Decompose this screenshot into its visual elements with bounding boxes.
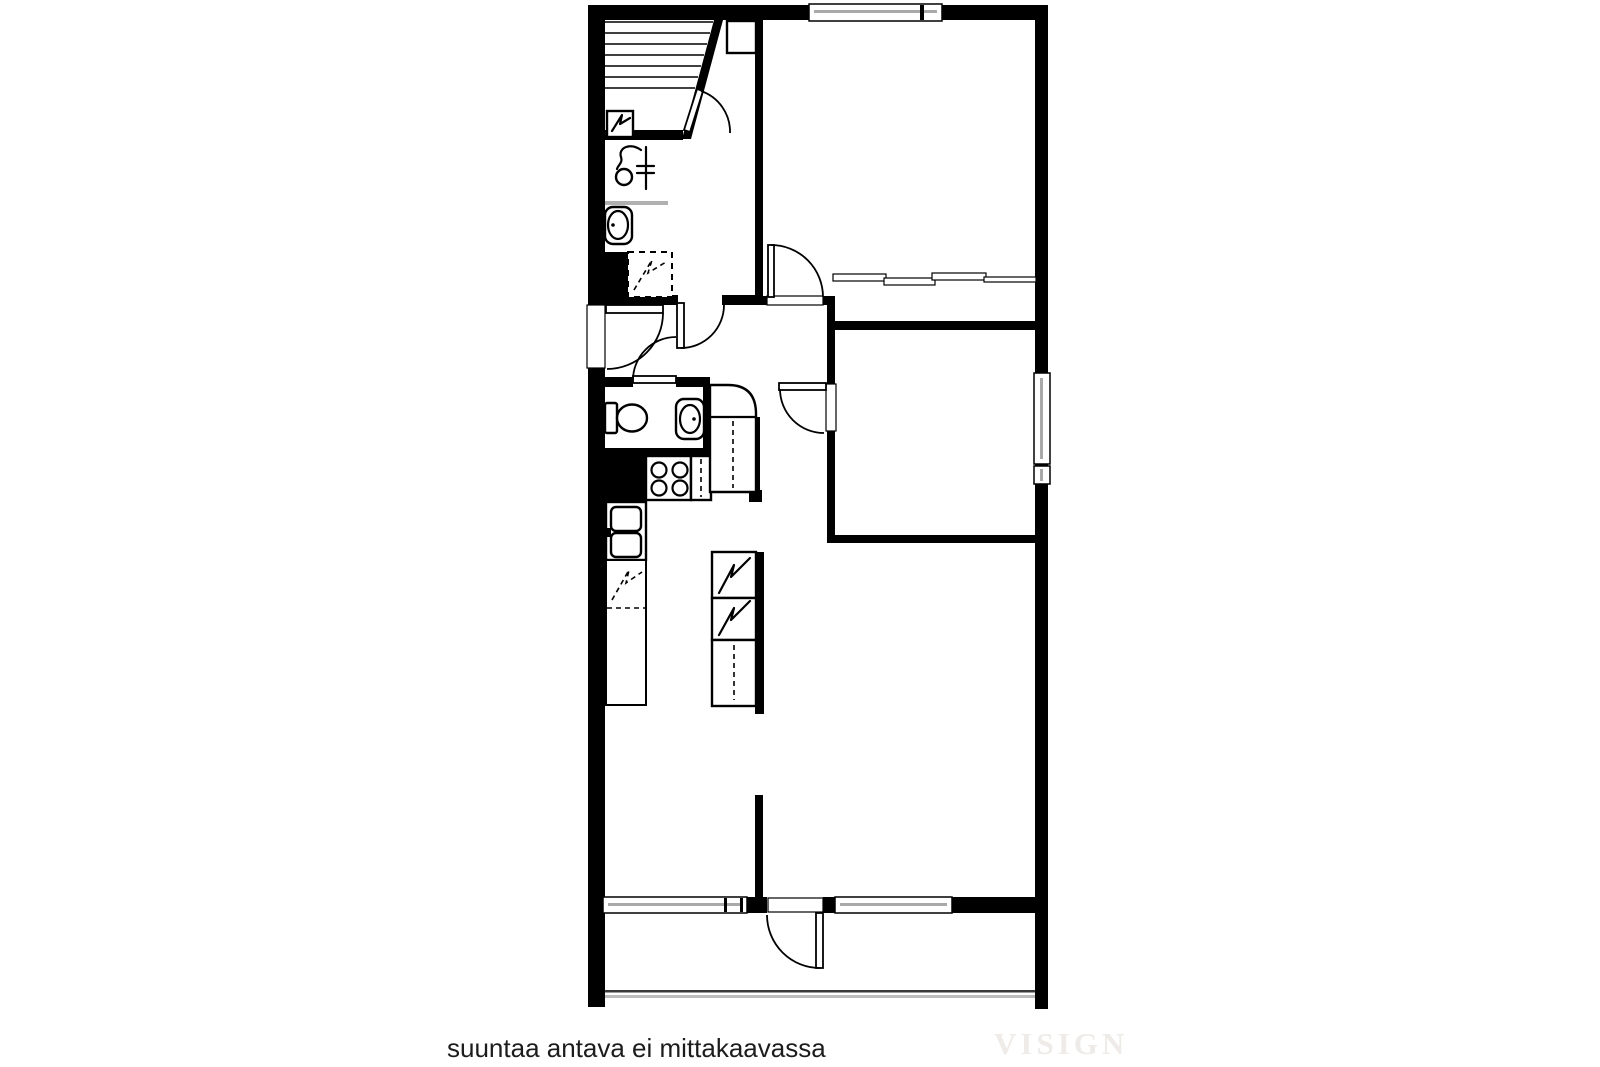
window-bottom-right	[835, 897, 952, 913]
bathroom-sink-icon	[605, 207, 632, 244]
fridge-icon	[710, 385, 756, 492]
stove-icon	[646, 456, 711, 500]
appliance-tower-icon	[712, 552, 756, 706]
water-heater-icon	[628, 252, 672, 297]
window-bottom-left	[603, 897, 747, 913]
bedroom2-door	[779, 383, 836, 433]
balcony-railing	[605, 990, 1035, 998]
shower-mixer-icon	[616, 146, 654, 189]
electrical-panel-icon	[607, 111, 633, 137]
staircase-door	[684, 89, 730, 133]
balcony-door	[767, 898, 823, 968]
bedroom1-door	[767, 245, 823, 305]
floor-plan	[0, 0, 1600, 1067]
toilet-icon	[605, 403, 647, 433]
brand-watermark: VISIGN	[994, 1026, 1128, 1062]
entrance-door	[587, 305, 663, 369]
bathroom-door	[677, 303, 724, 348]
wc-sink-icon	[676, 399, 704, 439]
duct-shaft	[727, 21, 756, 53]
window-right-large	[1034, 373, 1050, 464]
wardrobe-sliding-doors	[833, 273, 1036, 285]
bathroom-shelf	[605, 201, 668, 205]
staircase	[605, 21, 756, 88]
walls	[588, 5, 1048, 1009]
window-right-small	[1034, 466, 1050, 484]
scale-disclaimer: suuntaa antava ei mittakaavassa	[447, 1033, 826, 1064]
floor-plan-page: suuntaa antava ei mittakaavassa VISIGN	[0, 0, 1600, 1067]
window-top	[809, 4, 942, 21]
